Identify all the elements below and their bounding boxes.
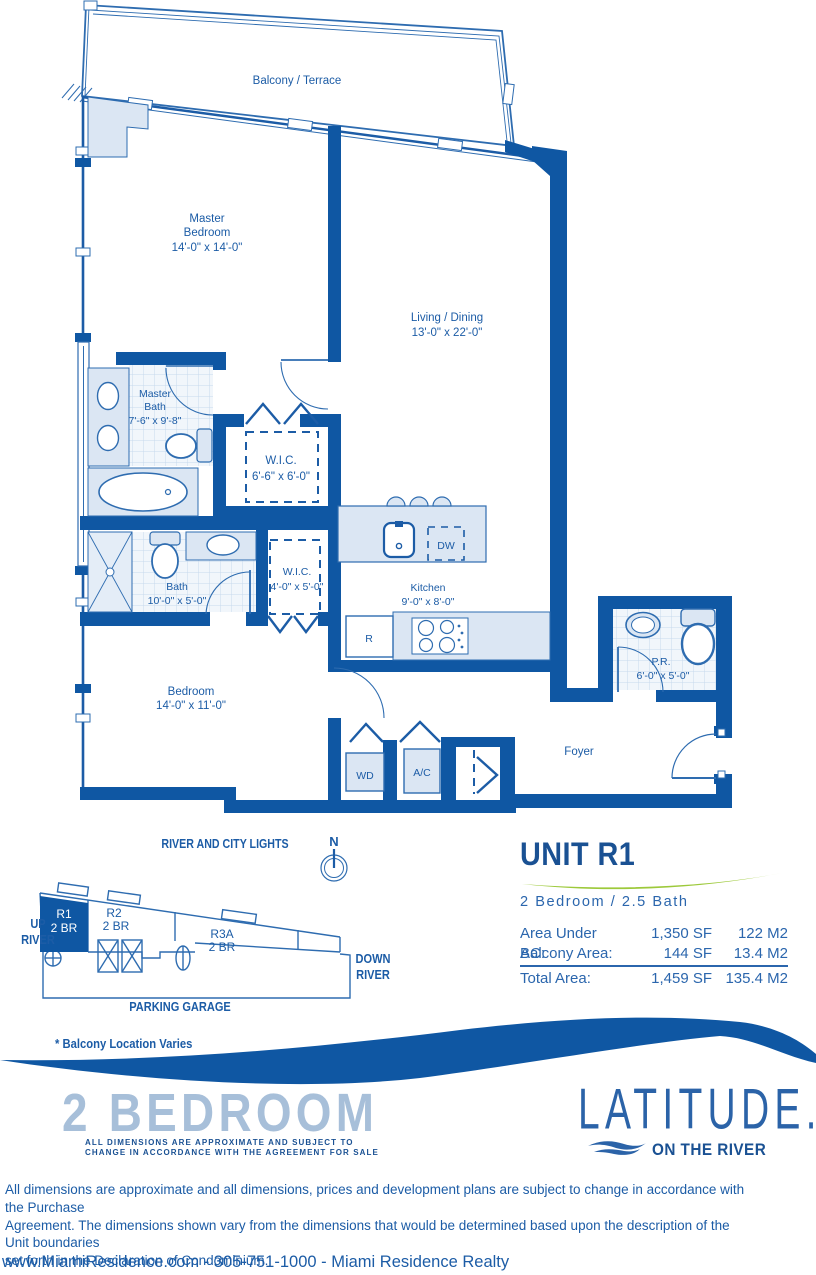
table-row: Area Under AC: 1,350 SF 122 M2 (520, 924, 788, 944)
river-label: RIVER AND CITY LIGHTS (161, 836, 288, 851)
up-river-label1: UP (30, 916, 45, 931)
fine-print-line2: CHANGE IN ACCORDANCE WITH THE AGREEMENT … (85, 1148, 379, 1158)
site-r2-type: 2 BR (103, 919, 130, 933)
master-wic-dims: 6'-6" x 6'-0" (252, 471, 310, 483)
row-sf: 144 SF (624, 944, 712, 964)
green-swoosh (520, 871, 790, 891)
master-bath-dims: 7'-6" x 9'-8" (129, 415, 182, 427)
row-m2: 135.4 M2 (712, 969, 788, 989)
toilet-icon (166, 434, 196, 458)
master-closet-shape (88, 97, 148, 157)
down-river-label1: DOWN (356, 951, 391, 966)
master-bedroom-dims: 14'-0" x 14'-0" (172, 242, 243, 254)
up-river-label2: RIVER (21, 932, 55, 947)
sink-icon (98, 426, 119, 451)
site-r3a-id: R3A (210, 927, 233, 941)
unit-info-panel: UNIT R1 2 Bedroom / 2.5 Bath Area Under … (520, 836, 800, 989)
floor-plan-page: Balcony / Terrace (0, 0, 816, 1275)
area-table: Area Under AC: 1,350 SF 122 M2 Balcony A… (520, 924, 788, 989)
ac-label: A/C (413, 767, 431, 779)
bifold-door-icon (400, 722, 440, 742)
master-bath-label2: Bath (144, 401, 166, 413)
compass-icon: N (321, 834, 347, 881)
stool-icon (433, 497, 451, 506)
down-river-label2: RIVER (356, 967, 390, 982)
table-row: Total Area: 1,459 SF 135.4 M2 (520, 969, 788, 989)
row-label: Total Area: (520, 969, 624, 989)
waves-icon (586, 1138, 648, 1158)
bedroom-label: Bedroom (168, 686, 215, 698)
fridge-label: R (365, 633, 373, 645)
utility-closets (346, 722, 497, 794)
bifold-door-icon (294, 616, 318, 632)
bedroom-door (334, 668, 384, 718)
stool-icon (410, 497, 428, 506)
bifold-door-icon (477, 757, 497, 793)
master-bath-label: Master (139, 388, 172, 400)
bath-label: Bath (166, 581, 188, 593)
master-bedroom-door (281, 360, 328, 409)
hall-wic-label: W.I.C. (283, 566, 312, 578)
kitchen-sink-icon (384, 523, 414, 557)
unit-subtitle: 2 Bedroom / 2.5 Bath (520, 893, 792, 910)
foyer-label: Foyer (564, 746, 594, 758)
logo-tagline: ON THE RIVER (652, 1140, 766, 1160)
row-sf: 1,459 SF (624, 969, 712, 989)
bifold-door-icon (350, 724, 383, 742)
plan-name-heading: 2 BEDROOM (62, 1082, 378, 1144)
balcony-label: Balcony / Terrace (253, 75, 342, 87)
dw-label: DW (437, 540, 455, 552)
bathtub-icon (99, 473, 187, 511)
sink-icon (98, 383, 119, 410)
powder-room-dims: 6'-0" x 5'-0" (637, 670, 690, 682)
row-m2: 122 M2 (712, 924, 788, 944)
disclaimer-line: Agreement. The dimensions shown vary fro… (5, 1217, 745, 1253)
site-r3a-type: 2 BR (209, 940, 236, 954)
bifold-door-icon (268, 616, 292, 632)
toilet-icon (682, 624, 714, 664)
toilet-icon (152, 544, 178, 578)
table-row: Balcony Area: 144 SF 13.4 M2 (520, 944, 788, 964)
hall-wic-dims: 4'-0" x 5'-0" (271, 581, 324, 593)
living-dining-dims: 13'-0" x 22'-0" (412, 327, 483, 339)
row-label: Balcony Area: (520, 944, 624, 964)
site-r2-id: R2 (106, 906, 122, 920)
latitude-logo: LATITUDE. (578, 1077, 816, 1143)
bedroom-dims: 14'-0" x 11'-0" (156, 700, 226, 712)
table-divider (520, 965, 788, 967)
master-wic-label: W.I.C. (265, 455, 296, 467)
footer-contact: www.MiamiResidence.com - 305-751-1000 - … (2, 1253, 509, 1272)
bath-dims: 10'-0" x 5'-0" (148, 595, 207, 607)
stool-icon (387, 497, 405, 506)
kitchen-label: Kitchen (410, 582, 445, 594)
floor-plan-drawing: Balcony / Terrace (0, 0, 816, 822)
toilet-tank-icon (150, 532, 180, 545)
row-m2: 13.4 M2 (712, 944, 788, 964)
bifold-door-icon (246, 404, 280, 424)
living-dining-label: Living / Dining (411, 312, 483, 324)
disclaimer-line: All dimensions are approximate and all d… (5, 1181, 745, 1217)
master-bedroom-label2: Bedroom (184, 227, 231, 239)
unit-title: UNIT R1 (520, 836, 772, 873)
compass-n-label: N (329, 834, 338, 849)
wd-label: WD (356, 770, 374, 782)
fine-print-line1: ALL DIMENSIONS ARE APPROXIMATE AND SUBJE… (85, 1138, 354, 1148)
row-sf: 1,350 SF (624, 924, 712, 944)
row-label: Area Under AC: (520, 924, 624, 944)
sink-icon (207, 535, 239, 555)
master-bedroom-label: Master (189, 213, 224, 225)
toilet-tank-icon (197, 429, 212, 462)
kitchen-dims: 9'-0" x 8'-0" (402, 596, 455, 608)
powder-room-label: P.R. (651, 656, 670, 668)
site-r1-id: R1 (56, 907, 72, 921)
